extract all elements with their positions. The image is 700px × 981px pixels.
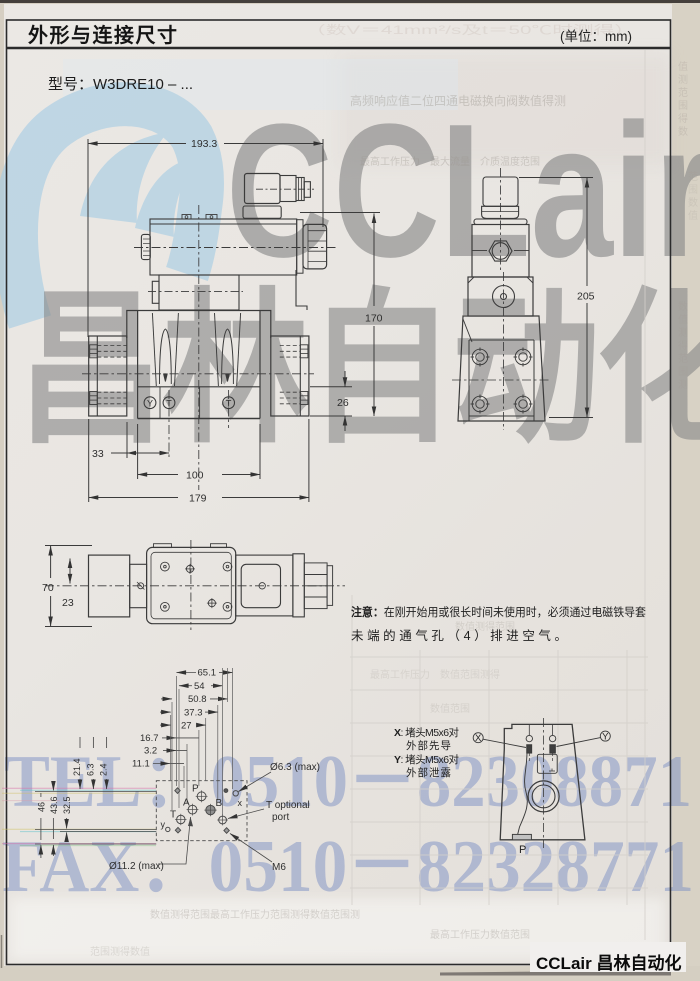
- svg-text:50.8: 50.8: [188, 694, 207, 705]
- svg-text:范围测得数值: 范围测得数值: [90, 945, 150, 958]
- svg-text:最高工作压力 数值范围测得: 最高工作压力 数值范围测得: [370, 668, 500, 681]
- svg-text:数值测得范围测: 数值测得范围测: [678, 300, 688, 391]
- svg-text:43.6: 43.6: [49, 796, 59, 814]
- svg-text:port: port: [272, 812, 289, 823]
- svg-text:170: 170: [365, 313, 383, 325]
- svg-text:Ø11.2 (max): Ø11.2 (max): [109, 861, 164, 872]
- svg-text:3.2: 3.2: [144, 746, 157, 757]
- svg-text:值测范围得数: 值测范围得数: [678, 60, 688, 138]
- svg-text:外形与连接尺寸: 外形与连接尺寸: [28, 23, 179, 47]
- svg-text:16.7: 16.7: [140, 733, 159, 744]
- svg-text:未端的通气孔（4）排进空气。: 未端的通气孔（4）排进空气。: [351, 628, 567, 643]
- svg-text:T: T: [170, 810, 176, 821]
- svg-text:X: 堵头M5x6对: X: 堵头M5x6对: [394, 726, 460, 739]
- svg-text:y: y: [161, 820, 166, 830]
- svg-text:范围数值: 范围数值: [688, 170, 698, 222]
- svg-text:27: 27: [181, 720, 192, 731]
- svg-text:65.1: 65.1: [198, 668, 217, 679]
- svg-text:6.3: 6.3: [85, 763, 95, 776]
- svg-text:Y: Y: [602, 732, 609, 743]
- svg-text:M6: M6: [272, 862, 286, 873]
- svg-text:(单位：mm): (单位：mm): [560, 29, 632, 44]
- svg-text:Y: 堵头M5x6对: Y: 堵头M5x6对: [394, 753, 460, 766]
- svg-text:54: 54: [194, 681, 205, 692]
- svg-text:型号：W3DRE10 – ...: 型号：W3DRE10 – ...: [48, 76, 193, 93]
- svg-text:最高工作压力数值范围: 最高工作压力数值范围: [430, 928, 530, 941]
- svg-text:46: 46: [37, 802, 47, 812]
- svg-text:11.1: 11.1: [132, 759, 150, 770]
- svg-text:100: 100: [186, 470, 204, 482]
- svg-text:37.3: 37.3: [184, 707, 203, 718]
- svg-text:26: 26: [337, 397, 349, 409]
- svg-text:数值范围: 数值范围: [430, 702, 470, 715]
- svg-text:P: P: [192, 784, 199, 795]
- svg-text:Y: Y: [147, 398, 153, 408]
- svg-text:P: P: [519, 844, 526, 856]
- svg-text:70: 70: [42, 582, 54, 594]
- svg-text:外部先导: 外部先导: [406, 739, 451, 752]
- svg-text:T optional: T optional: [266, 800, 310, 811]
- svg-text:32.5: 32.5: [62, 796, 72, 814]
- svg-text:193.3: 193.3: [191, 138, 217, 150]
- svg-text:23: 23: [62, 597, 74, 609]
- svg-text:数值测得范围最高工作压力范围测得数值范围测: 数值测得范围最高工作压力范围测得数值范围测: [150, 908, 360, 921]
- svg-text:205: 205: [577, 291, 595, 303]
- svg-text:21.4: 21.4: [72, 758, 82, 776]
- svg-text:X: X: [475, 733, 482, 744]
- svg-text:33: 33: [92, 448, 104, 460]
- svg-text:B: B: [216, 798, 223, 809]
- svg-text:高频响应值二位四通电磁换向阀数值得测: 高频响应值二位四通电磁换向阀数值得测: [350, 93, 566, 108]
- svg-text:x: x: [238, 798, 243, 808]
- svg-text:T: T: [226, 398, 232, 408]
- svg-text:最高工作压力 最大流量 介质温度范围: 最高工作压力 最大流量 介质温度范围: [360, 155, 540, 168]
- svg-text:注意：在刚开始用或很长时间未使用时，必须通过电磁铁导套: 注意：在刚开始用或很长时间未使用时，必须通过电磁铁导套: [351, 605, 646, 619]
- svg-text:2.4: 2.4: [99, 763, 109, 776]
- svg-text:A: A: [183, 798, 190, 809]
- svg-text:Ø6.3 (max): Ø6.3 (max): [270, 762, 320, 773]
- svg-text:外部泄露: 外部泄露: [406, 766, 452, 779]
- svg-text:T: T: [166, 398, 172, 408]
- svg-text:179: 179: [189, 493, 207, 505]
